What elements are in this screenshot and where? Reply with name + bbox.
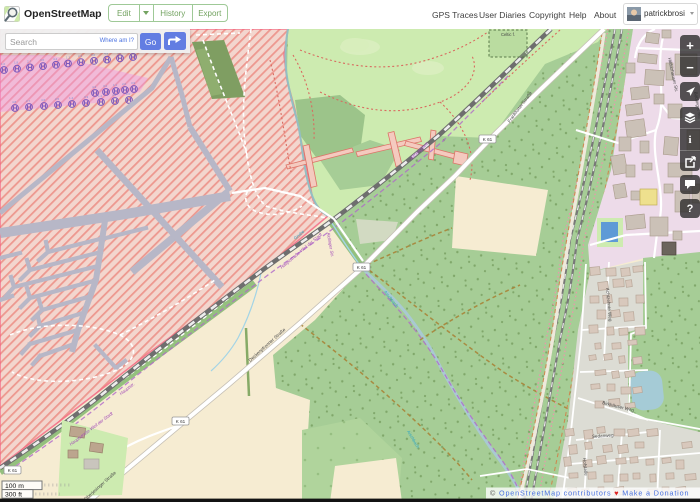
- svg-text:1.0: 1.0: [1, 62, 6, 66]
- svg-text:3.2: 3.2: [103, 84, 108, 88]
- svg-text:4.1: 4.1: [112, 93, 117, 97]
- svg-text:1.1: 1.1: [113, 83, 118, 87]
- svg-text:2.7: 2.7: [27, 59, 32, 63]
- svg-text:3.0: 3.0: [91, 53, 96, 57]
- svg-text:K 61: K 61: [8, 468, 18, 473]
- svg-text:Celtic f.: Celtic f.: [501, 32, 515, 37]
- svg-text:K 61: K 61: [483, 137, 493, 142]
- svg-text:© OpenStreetMap contributors ♥: © OpenStreetMap contributors ♥ Make a Do…: [490, 489, 689, 498]
- svg-text:100 m: 100 m: [5, 483, 24, 490]
- svg-text:1.3: 1.3: [66, 56, 71, 60]
- svg-text:2.0: 2.0: [126, 92, 131, 96]
- svg-text:1.2: 1.2: [98, 94, 103, 98]
- svg-text:4.6: 4.6: [41, 98, 46, 102]
- svg-text:300 ft: 300 ft: [5, 492, 22, 499]
- svg-text:1.8: 1.8: [14, 61, 19, 65]
- svg-text:2.2: 2.2: [78, 54, 83, 58]
- svg-text:2.7: 2.7: [26, 99, 31, 103]
- svg-text:4.3: 4.3: [92, 85, 97, 89]
- svg-text:2.5: 2.5: [55, 97, 60, 101]
- svg-text:3.3: 3.3: [84, 95, 89, 99]
- svg-text:4.4: 4.4: [53, 57, 58, 61]
- svg-text:3.9: 3.9: [131, 81, 136, 85]
- svg-text:K 61: K 61: [176, 419, 186, 424]
- svg-text:4.8: 4.8: [12, 100, 17, 104]
- svg-text:2.0: 2.0: [122, 82, 127, 86]
- svg-text:1.4: 1.4: [69, 96, 74, 100]
- svg-text:K 61: K 61: [357, 265, 367, 270]
- svg-text:3.6: 3.6: [40, 58, 45, 62]
